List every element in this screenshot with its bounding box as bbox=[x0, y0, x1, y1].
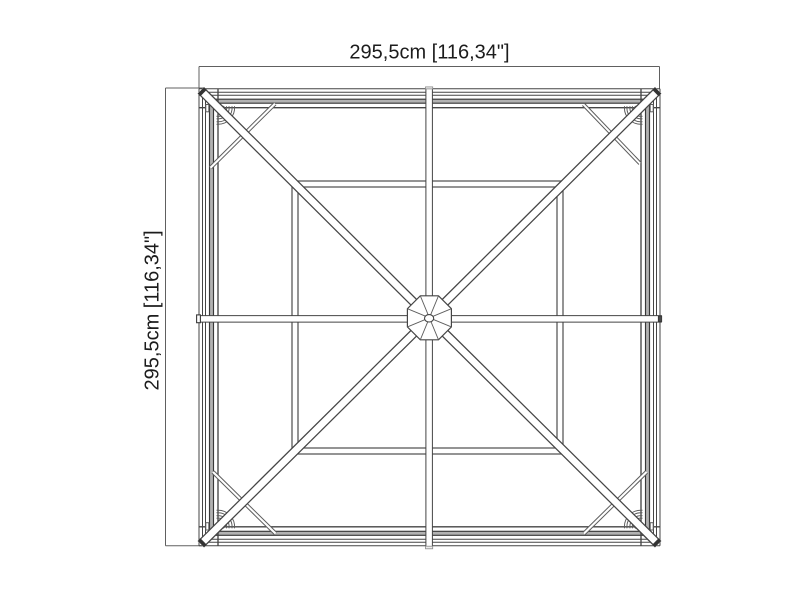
svg-text:295,5cm [116,34"]: 295,5cm [116,34"] bbox=[142, 230, 164, 390]
svg-text:295,5cm [116,34"]: 295,5cm [116,34"] bbox=[349, 42, 509, 64]
